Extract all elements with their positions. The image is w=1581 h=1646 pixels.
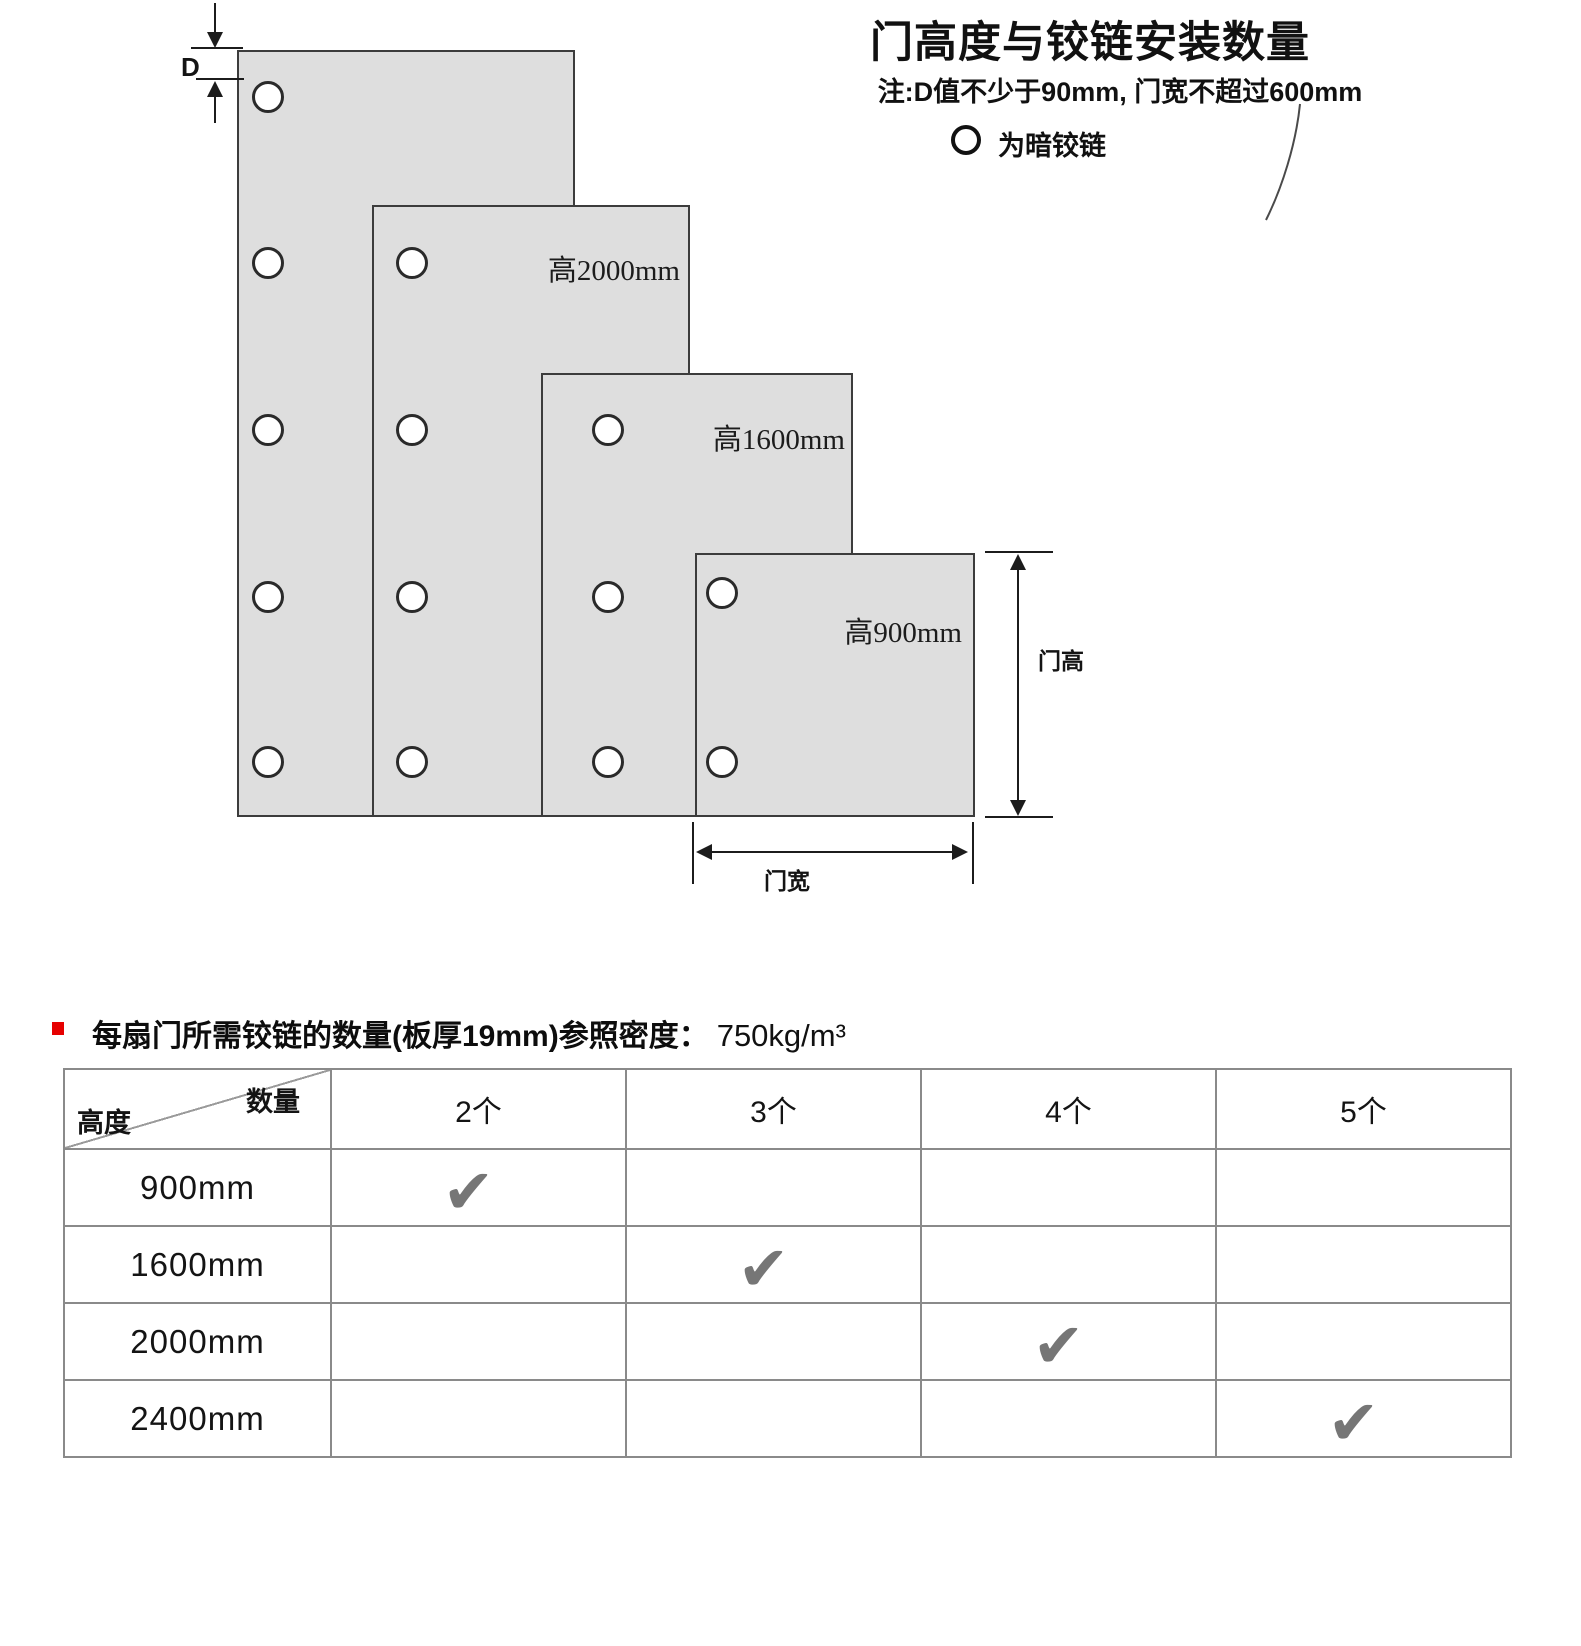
door-height-dim-label: 门高 <box>1038 642 1084 676</box>
section-heading: 每扇门所需铰链的数量(板厚19mm)参照密度：750kg/m³ <box>92 1011 846 1055</box>
d-dim-tick-bottom <box>196 78 244 80</box>
section-density-value: 750kg/m³ <box>717 1018 846 1053</box>
table-row-2000mm: 2000mm ✔ <box>64 1303 1511 1380</box>
checkmark-icon: ✔ <box>738 1238 790 1300</box>
decorative-curve <box>1262 100 1306 225</box>
width-dim-line <box>710 851 954 853</box>
cell-1600mm-2 <box>331 1226 626 1303</box>
column-header-5: 5个 <box>1216 1069 1511 1149</box>
hinge-circle <box>252 581 284 613</box>
diagram-title: 门高度与铰链安装数量 <box>830 8 1350 70</box>
cell-2400mm-3 <box>626 1380 921 1457</box>
cell-900mm-4 <box>921 1149 1216 1226</box>
hinge-quantity-table: 数量 高度 2个 3个 4个 5个 900mm ✔ 1600mm ✔ <box>63 1068 1512 1458</box>
height-dim-tick-top <box>985 551 1053 553</box>
door-width-dim-label: 门宽 <box>764 862 810 896</box>
hinge-circle <box>592 581 624 613</box>
cell-900mm-2: ✔ <box>331 1149 626 1226</box>
hinge-circle <box>252 414 284 446</box>
cell-900mm-5 <box>1216 1149 1511 1226</box>
hinge-circle <box>252 81 284 113</box>
hinge-circle <box>252 247 284 279</box>
d-dim-line-lower <box>214 95 216 123</box>
checkmark-icon: ✔ <box>443 1161 495 1223</box>
cell-2400mm-5: ✔ <box>1216 1380 1511 1457</box>
cell-1600mm-5 <box>1216 1226 1511 1303</box>
hinge-circle <box>706 577 738 609</box>
legend-label: 为暗铰链 <box>998 124 1106 163</box>
checkmark-icon: ✔ <box>1328 1392 1380 1454</box>
corner-quantity-label: 数量 <box>246 1080 300 1119</box>
hinge-circle <box>396 581 428 613</box>
table-row-1600mm: 1600mm ✔ <box>64 1226 1511 1303</box>
d-dim-tick-top <box>191 47 243 49</box>
cell-1600mm-3: ✔ <box>626 1226 921 1303</box>
door-2000mm-label: 高2000mm <box>480 247 680 289</box>
height-dim-line <box>1017 566 1019 804</box>
red-bullet-icon <box>52 1022 64 1035</box>
hinge-circle <box>252 746 284 778</box>
door-1600mm-label: 高1600mm <box>645 416 845 458</box>
height-dim-arrow-up-icon <box>1010 554 1026 570</box>
cell-1600mm-4 <box>921 1226 1216 1303</box>
row-header-1600mm: 1600mm <box>64 1226 331 1303</box>
hinge-circle <box>706 746 738 778</box>
table-row-2400mm: 2400mm ✔ <box>64 1380 1511 1457</box>
cell-2000mm-4: ✔ <box>921 1303 1216 1380</box>
table-header-row: 数量 高度 2个 3个 4个 5个 <box>64 1069 1511 1149</box>
hinge-circle <box>592 746 624 778</box>
cell-900mm-3 <box>626 1149 921 1226</box>
width-dim-arrow-left-icon <box>696 844 712 860</box>
column-header-4: 4个 <box>921 1069 1216 1149</box>
section-heading-text: 每扇门所需铰链的数量(板厚19mm)参照密度： <box>92 1020 709 1053</box>
d-dim-line-upper <box>214 3 216 33</box>
hinge-circle <box>396 247 428 279</box>
checkmark-icon: ✔ <box>1033 1315 1085 1377</box>
width-dim-ext-right <box>972 822 974 884</box>
cell-2400mm-2 <box>331 1380 626 1457</box>
height-dim-tick-bottom <box>985 816 1053 818</box>
width-dim-arrow-right-icon <box>952 844 968 860</box>
row-header-900mm: 900mm <box>64 1149 331 1226</box>
hinge-circle <box>396 746 428 778</box>
hinge-infographic: 高2000mm 高1600mm 高900mm D 门高 门宽 门高度与铰链安装数… <box>0 0 1581 1646</box>
row-header-2400mm: 2400mm <box>64 1380 331 1457</box>
table-corner-cell: 数量 高度 <box>64 1069 331 1149</box>
door-900mm-label: 高900mm <box>762 609 962 651</box>
cell-2400mm-4 <box>921 1380 1216 1457</box>
concealed-hinge-circle-icon <box>951 125 981 155</box>
column-header-3: 3个 <box>626 1069 921 1149</box>
hinge-circle <box>592 414 624 446</box>
hinge-circle <box>396 414 428 446</box>
height-dim-arrow-down-icon <box>1010 800 1026 816</box>
cell-2000mm-2 <box>331 1303 626 1380</box>
table-row-900mm: 900mm ✔ <box>64 1149 1511 1226</box>
cell-2000mm-5 <box>1216 1303 1511 1380</box>
d-dim-arrow-down-icon <box>207 32 223 48</box>
width-dim-ext-left <box>692 822 694 884</box>
row-header-2000mm: 2000mm <box>64 1303 331 1380</box>
corner-height-label: 高度 <box>77 1101 131 1140</box>
cell-2000mm-3 <box>626 1303 921 1380</box>
column-header-2: 2个 <box>331 1069 626 1149</box>
